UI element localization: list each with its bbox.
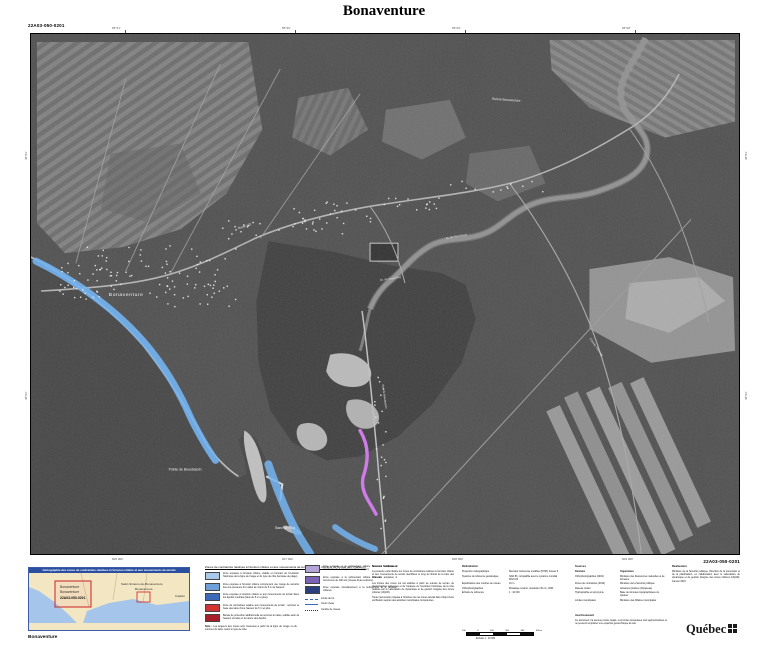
quebec-logo: Québec	[686, 622, 737, 637]
locator-caption: Bonaventure	[28, 635, 57, 640]
delim-label: Équidistance des courbes de niveau	[462, 582, 509, 585]
legend-item-text: Zone exposée à l'érosion côtière, établi…	[223, 572, 299, 578]
stream-line-symbol	[305, 604, 318, 605]
avertissement-text: Ce document n'a aucune portée légale. Le…	[575, 619, 667, 625]
source-data: Zones de contraintes (2016)	[575, 582, 620, 585]
map-label-town: Bonaventure	[109, 292, 144, 298]
tick-label-left: 48°02'	[24, 392, 28, 400]
locator-label-east: Saint-Siméon-de-Bonaventure	[121, 582, 163, 586]
map-label-pointe: Pointe de Beaubassin	[169, 467, 202, 471]
source-org: Base de données topographiques du Québec	[620, 591, 666, 597]
delim-label: Orthophotographies	[462, 587, 509, 590]
legend-swatch	[205, 583, 220, 591]
notes-paragraph: La présente carte illustre les zones de …	[372, 570, 454, 579]
legend-swatch	[305, 586, 320, 594]
scale-bar: 100 0 100 200 300 400 m Échelle 1 : 10 0…	[462, 630, 542, 640]
locator-label-east2: Bonaventure	[135, 587, 153, 591]
quebec-flag-icon	[728, 624, 737, 633]
tick-label-right: 48°03'	[744, 152, 748, 160]
user-notes: Notes à l'utilisateur La présente carte …	[372, 565, 454, 604]
source-data: Hydrographie et toponymie	[575, 591, 620, 597]
source-org: Ministère des Ressources naturelles et d…	[620, 575, 666, 581]
legend-swatch	[305, 565, 320, 573]
locator-map: Bonaventure Bonaventure 22A03-050-0201 S…	[29, 573, 189, 623]
source-org: Adresses Québec (AQréseau)	[620, 587, 666, 590]
delim-value: Mercator transverse modifiée (MTM), fuse…	[509, 570, 563, 573]
tick-label-bottom: 606 000	[112, 557, 123, 561]
sources-col-data: Données	[575, 570, 620, 573]
scale-tick: 400 m	[536, 630, 542, 632]
tick-label-bottom: 609 000	[622, 557, 633, 561]
tick-label-top: 65°31'	[112, 26, 120, 30]
delim-value: NAD 83, compatible avec le système mondi…	[509, 575, 563, 581]
notes-paragraph: Les limites des zones ont été établies à…	[372, 582, 454, 595]
delimitation-panel: Délimitation Projection cartographiqueMe…	[462, 565, 564, 596]
legend-item-text: Zone exposée à l'érosion côtière et aux …	[223, 593, 299, 599]
source-data: Orthophotographies (2004)	[575, 575, 620, 581]
tick-label-top: 65°30'	[282, 26, 290, 30]
notes-heading: Notes à l'utilisateur	[372, 565, 454, 569]
scale-tick: 0	[477, 630, 478, 632]
legend-item-text: Zone exposée à l'érosion côtière compren…	[223, 583, 299, 589]
scale-tick: 100	[462, 630, 466, 632]
legend-swatch	[205, 614, 220, 622]
delim-value: 1 : 10 000	[509, 591, 563, 594]
legend-swatch	[205, 593, 220, 601]
line-label: Courbe de niveau	[321, 608, 397, 611]
legend-item-text: Bande de protection additionnelle au som…	[223, 614, 299, 620]
realisation-text: Ministère de la Sécurité publique, Direc…	[672, 570, 740, 583]
aerial-photo-map: Bonaventure Pointe de Beaubassin Banc de…	[31, 34, 739, 554]
quebec-wordmark: Québec	[686, 622, 726, 637]
scale-tick: 100	[490, 630, 494, 632]
map-sheet: Bonaventure 22A03-050-0201 22A03-050-020…	[0, 0, 768, 658]
legend-note: Note : Les largeurs des zones sont mesur…	[205, 625, 297, 631]
locator-label: Bonaventure	[60, 585, 79, 589]
lot-line-symbol	[305, 599, 318, 600]
scale-tick: 200	[505, 630, 509, 632]
map-label-banc: Banc de l'Est	[275, 526, 295, 530]
tick-label-right: 48°02'	[744, 392, 748, 400]
locator-sheet-code: 22A03-050-0201	[60, 596, 86, 600]
locator-label: Bonaventure	[60, 590, 79, 594]
source-data: Réseau routier	[575, 587, 620, 590]
tick-label-bottom: 608 000	[452, 557, 463, 561]
tick-label-left: 48°03'	[24, 152, 28, 160]
legend: Zones de contraintes relatives à l'érosi…	[205, 565, 365, 631]
scale-bar-segments	[466, 632, 534, 636]
sheet-code-top-left: 22A03-050-0201	[28, 23, 65, 28]
scale-tick: 300	[521, 630, 525, 632]
sources-col-org: Organismes	[620, 570, 666, 573]
legend-swatch	[305, 576, 320, 584]
sources-panel: Sources DonnéesOrganismes Orthophotograp…	[575, 565, 667, 603]
map-frame: Bonaventure Pointe de Beaubassin Banc de…	[30, 33, 740, 555]
notes-paragraph: Toute intervention projetée à l'intérieu…	[372, 596, 454, 602]
realisation-heading: Réalisation	[672, 565, 740, 569]
delim-label: Système de référence géodésique	[462, 575, 509, 581]
tick-label-top: 65°29'	[452, 26, 460, 30]
delim-value: 10 m	[509, 582, 563, 585]
avertissement-heading: Avertissement	[575, 614, 667, 618]
delimitation-heading: Délimitation	[462, 565, 564, 569]
tick-label-top: 65°28'	[622, 26, 630, 30]
page-title: Bonaventure	[0, 3, 768, 20]
legend-note-text: Les largeurs des zones sont mesurées à p…	[205, 625, 297, 631]
source-org: Ministère de la Sécurité publique	[620, 582, 666, 585]
contour-line-symbol	[305, 610, 318, 611]
legend-swatch	[205, 604, 220, 612]
legend-item-text: Zone de contraintes relative aux mouveme…	[223, 604, 299, 610]
source-org: Ministère des Affaires municipales	[620, 599, 666, 602]
sheet-code-bottom-right: 22A03-050-0201	[680, 559, 740, 564]
delim-label: Échelle de référence	[462, 591, 509, 594]
locator-inset: Cartographie des zones de contraintes re…	[28, 567, 190, 631]
locator-label-far: Caplan	[175, 594, 185, 598]
scale-caption: Échelle 1 : 10 000	[476, 637, 542, 640]
avertissement-panel: Avertissement Ce document n'a aucune por…	[575, 614, 667, 627]
tick-label-bottom: 607 000	[282, 557, 293, 561]
realisation-panel: Réalisation Ministère de la Sécurité pub…	[672, 565, 740, 585]
legend-swatch	[205, 572, 220, 580]
source-data: Limites municipales	[575, 599, 620, 602]
sources-heading: Sources	[575, 565, 667, 569]
delim-label: Projection cartographique	[462, 570, 509, 573]
delim-value: Mosaïque couleur, résolution 30 cm, 2004	[509, 587, 563, 590]
